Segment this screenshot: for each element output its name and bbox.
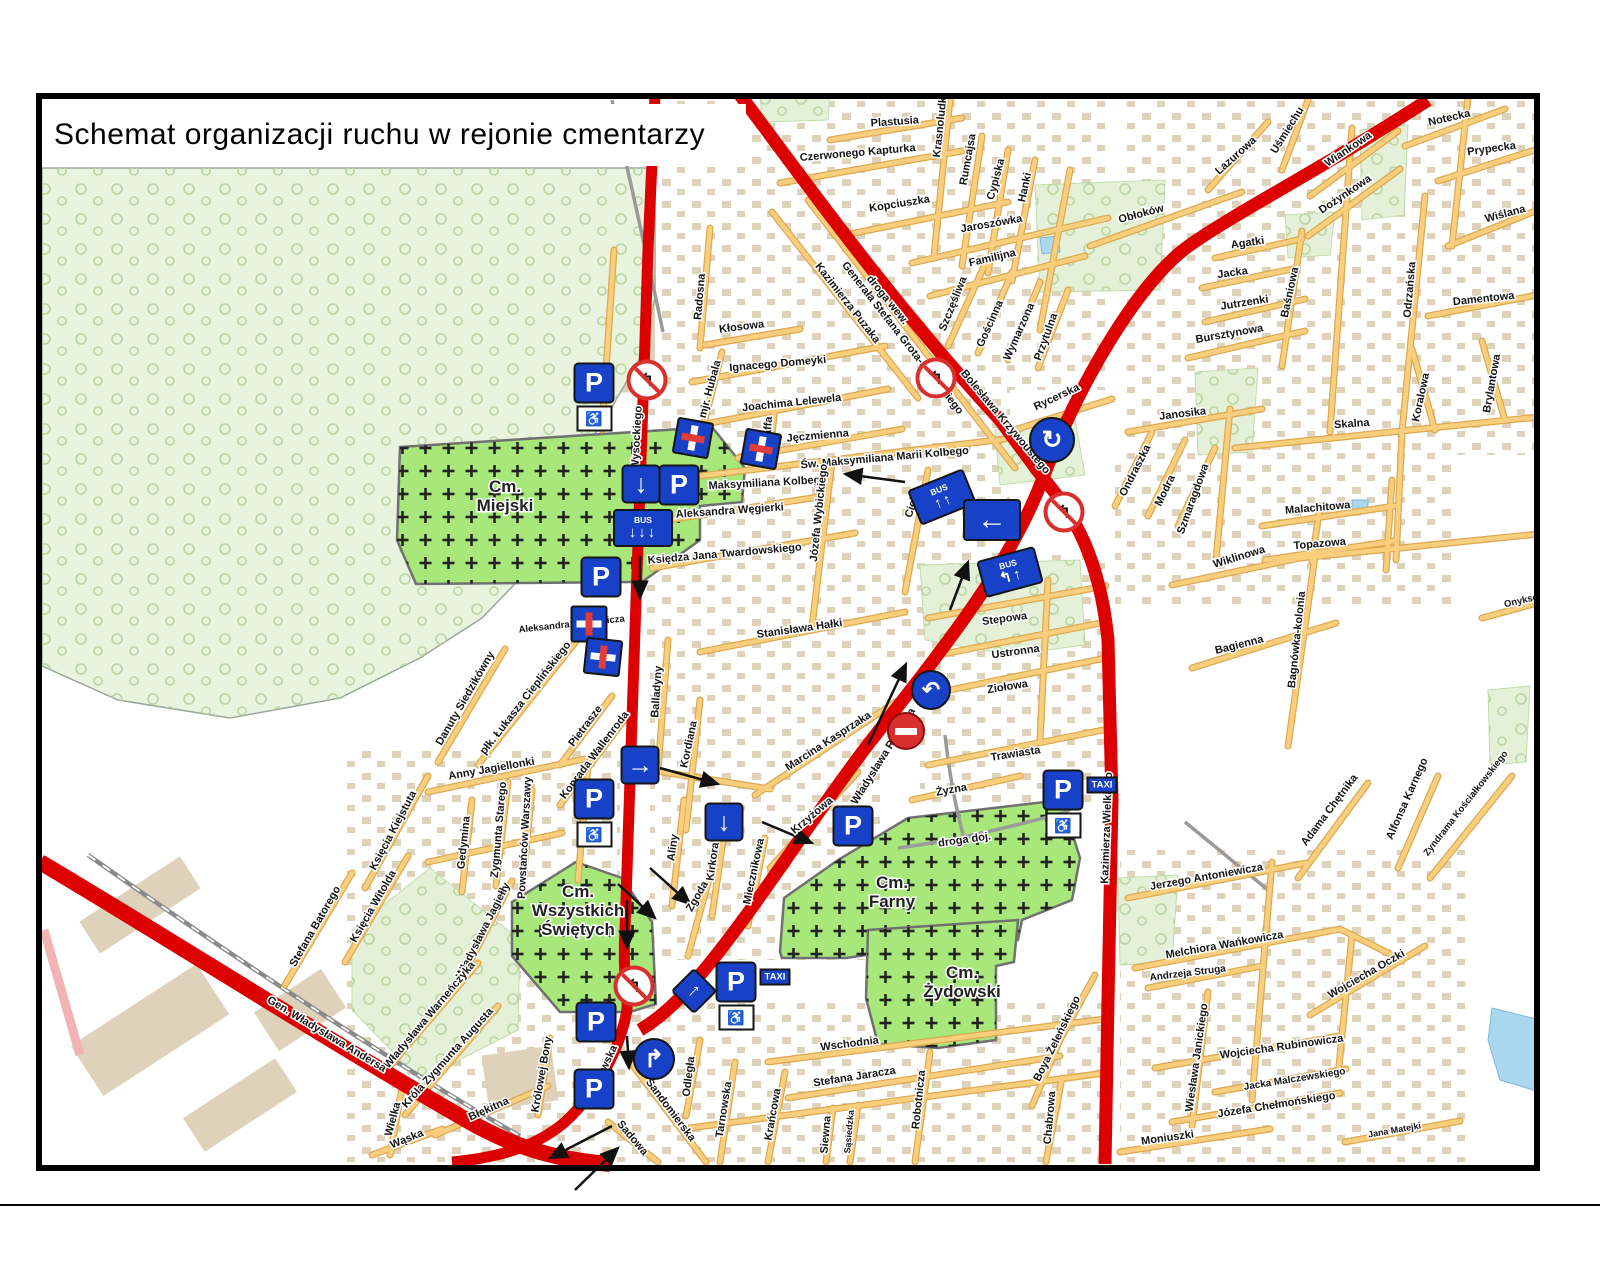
street-label: Zyndrama Kościałkowskiego xyxy=(1422,749,1511,859)
street-label: Stefana Batorego xyxy=(287,884,343,969)
street-label: Staffa xyxy=(761,415,775,447)
street-label: Danuty Siedzikówny xyxy=(434,649,498,748)
map-svg: SkrzatówPlastusiaCzerwonego KapturkaKras… xyxy=(41,99,1534,1205)
street-label: Aleksandra Karpowicza xyxy=(518,613,626,635)
street-label: Alfonsa Karnego xyxy=(1384,756,1431,842)
bottom-rule xyxy=(0,1204,1600,1206)
map-page: SkrzatówPlastusiaCzerwonego KapturkaKras… xyxy=(0,0,1600,1280)
map-title: Schemat organizacji ruchu w rejonie cmen… xyxy=(42,104,746,166)
street-label: Skalna xyxy=(1334,417,1371,432)
